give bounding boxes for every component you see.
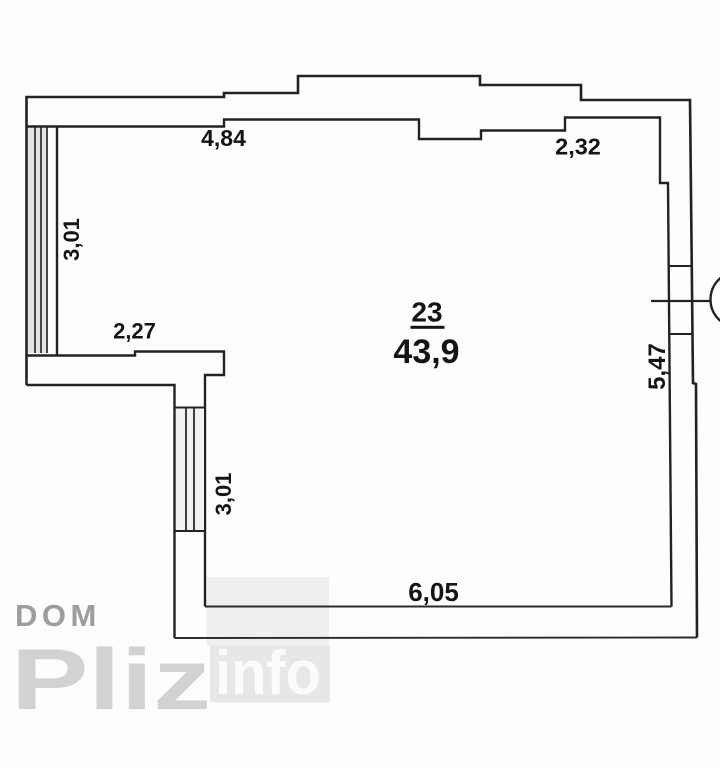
svg-text:DOM: DOM xyxy=(15,598,101,633)
svg-text:23: 23 xyxy=(411,297,442,328)
svg-text:2,27: 2,27 xyxy=(113,319,156,344)
svg-text:3,01: 3,01 xyxy=(211,473,236,516)
svg-text:43,9: 43,9 xyxy=(393,333,459,371)
svg-text:3,01: 3,01 xyxy=(59,218,84,261)
svg-text:6,05: 6,05 xyxy=(408,577,459,607)
svg-text:2,32: 2,32 xyxy=(555,134,601,160)
svg-text:4,84: 4,84 xyxy=(201,125,246,151)
svg-text:Pliz: Pliz xyxy=(11,632,211,728)
svg-text:5,47: 5,47 xyxy=(644,343,671,390)
svg-text:info: info xyxy=(215,639,321,708)
